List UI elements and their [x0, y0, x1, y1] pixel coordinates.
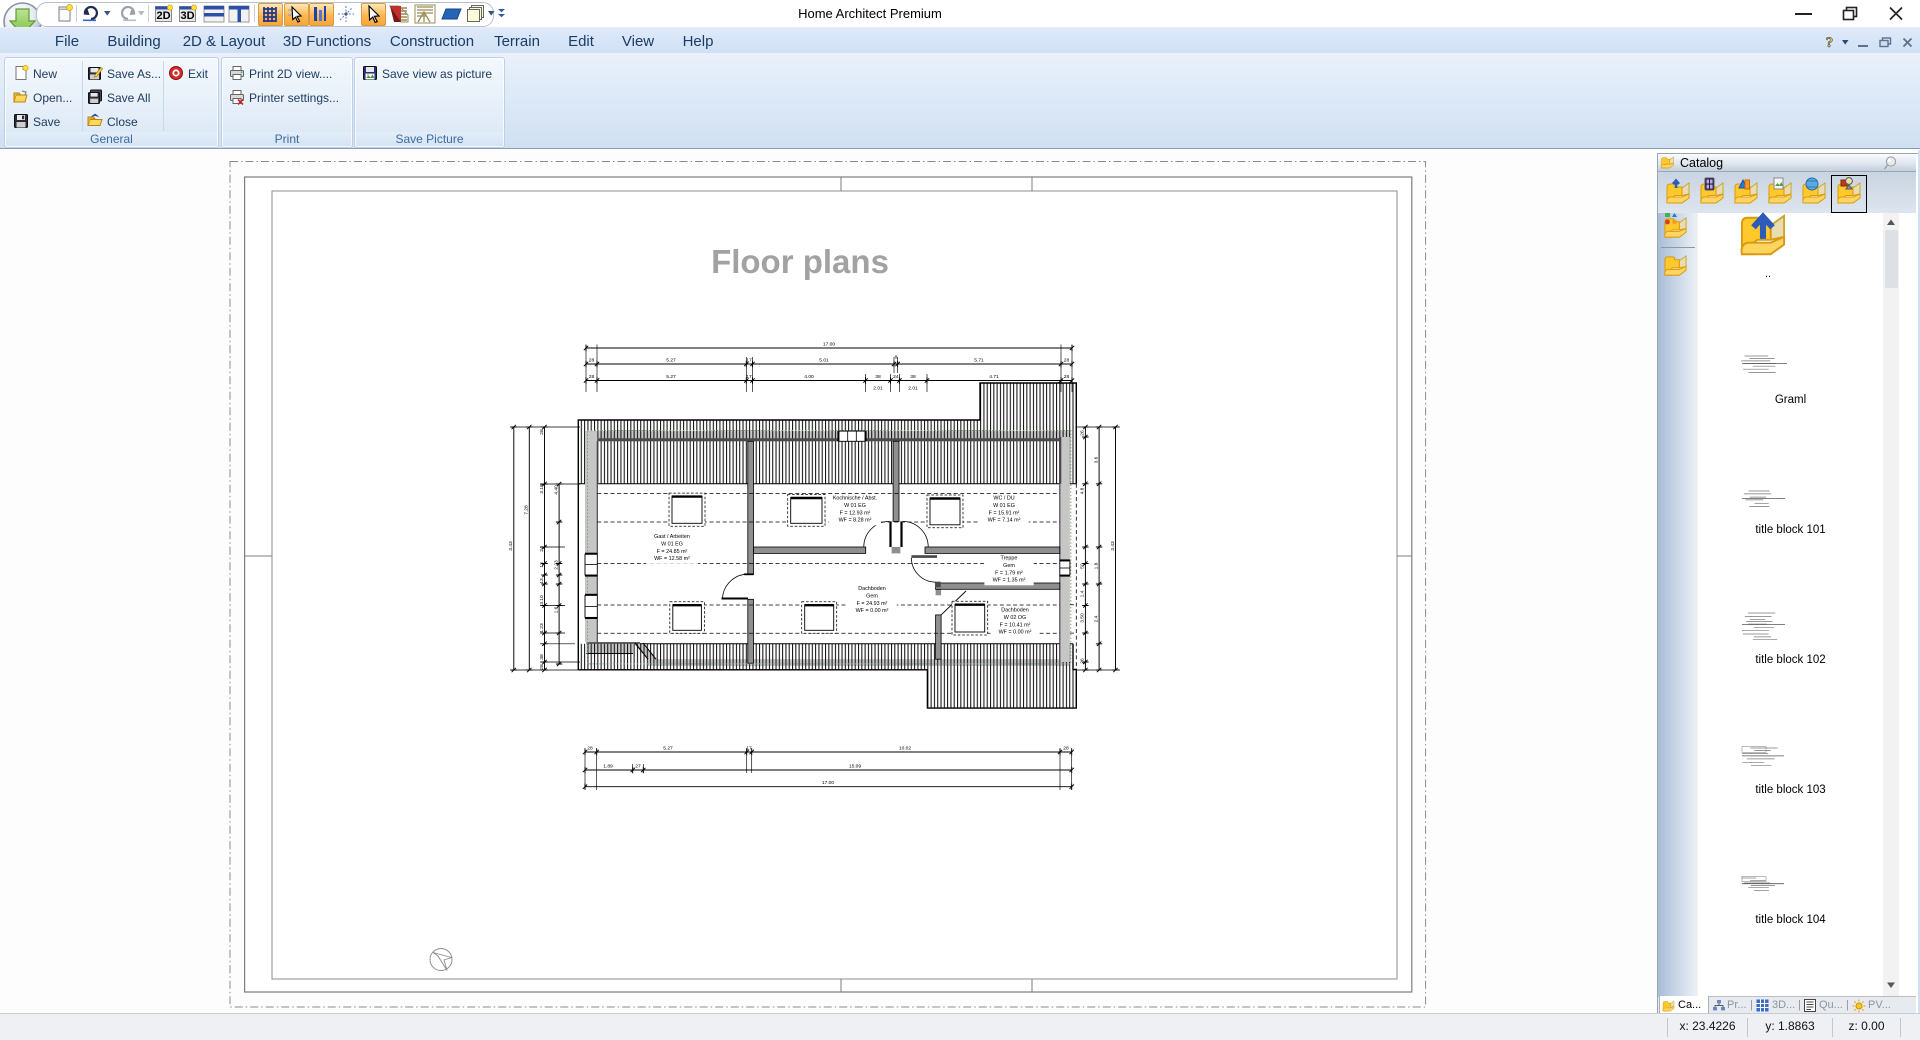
svg-text:2.4: 2.4	[1093, 615, 1099, 622]
svg-text:2.01: 2.01	[908, 386, 918, 392]
svg-text:WF = 8.28 m²: WF = 8.28 m²	[839, 518, 872, 524]
svg-text:3.43: 3.43	[508, 541, 514, 551]
svg-text:3.43: 3.43	[1110, 541, 1116, 551]
svg-text:F = 24.93 m²: F = 24.93 m²	[857, 601, 888, 607]
svg-text:38: 38	[910, 374, 916, 380]
svg-text:13: 13	[539, 562, 545, 568]
svg-text:5.27: 5.27	[666, 374, 676, 380]
svg-text:Dachboden: Dachboden	[1001, 608, 1029, 614]
svg-text:28: 28	[1064, 374, 1070, 380]
svg-text:1.23: 1.23	[539, 623, 545, 633]
svg-text:26: 26	[1080, 658, 1086, 664]
svg-text:WF = 0.00 m²: WF = 0.00 m²	[856, 608, 889, 614]
svg-text:17: 17	[746, 746, 752, 752]
svg-text:WF = 7.14 m²: WF = 7.14 m²	[988, 518, 1021, 524]
svg-text:28: 28	[587, 746, 593, 752]
svg-text:Kochnische / Abst.: Kochnische / Abst.	[833, 496, 877, 502]
svg-text:WC / DU: WC / DU	[993, 496, 1014, 502]
svg-text:4.8: 4.8	[1080, 487, 1086, 494]
svg-text:Gast / Arbeiten: Gast / Arbeiten	[654, 534, 690, 540]
svg-text:Gem: Gem	[1003, 563, 1015, 569]
svg-text:10.02: 10.02	[899, 746, 912, 752]
svg-text:2.23: 2.23	[554, 560, 560, 570]
svg-text:27: 27	[635, 764, 641, 770]
svg-text:5.71: 5.71	[974, 358, 984, 364]
svg-text:1.8: 1.8	[1093, 562, 1099, 569]
svg-text:5.27: 5.27	[666, 358, 676, 364]
svg-text:8: 8	[895, 355, 898, 361]
svg-text:17: 17	[746, 374, 752, 380]
svg-text:3D: 3D	[180, 10, 194, 22]
svg-text:1.89: 1.89	[603, 764, 613, 770]
svg-text:4.00: 4.00	[804, 374, 814, 380]
svg-text:W 01 EG: W 01 EG	[993, 503, 1015, 509]
svg-text:28: 28	[589, 374, 595, 380]
svg-text:5.27: 5.27	[663, 746, 673, 752]
svg-text:3.18: 3.18	[539, 484, 545, 494]
svg-text:3.50: 3.50	[1080, 613, 1086, 623]
svg-text:F = 12.93 m²: F = 12.93 m²	[840, 510, 871, 516]
svg-text:50: 50	[1080, 563, 1086, 569]
svg-text:F = 15.91 m²: F = 15.91 m²	[989, 510, 1020, 516]
svg-text:4.71: 4.71	[989, 374, 999, 380]
svg-text:3.6: 3.6	[1093, 456, 1099, 463]
svg-text:2D: 2D	[156, 10, 170, 22]
svg-text:26: 26	[1080, 430, 1086, 436]
svg-text:17.00: 17.00	[823, 342, 836, 348]
svg-text:W 01 EG: W 01 EG	[844, 503, 866, 509]
svg-text:5.01: 5.01	[819, 358, 829, 364]
svg-text:24: 24	[893, 374, 899, 380]
svg-text:F = 24.85 m²: F = 24.85 m²	[657, 549, 688, 555]
svg-text:17: 17	[746, 358, 752, 364]
svg-text:WF = 12.58 m²: WF = 12.58 m²	[654, 556, 690, 562]
svg-text:28: 28	[1063, 746, 1069, 752]
svg-text:Floor plans: Floor plans	[711, 243, 889, 280]
svg-text:F = 1.79 m²: F = 1.79 m²	[995, 570, 1023, 576]
svg-text:28: 28	[539, 429, 545, 435]
svg-text:28: 28	[539, 664, 545, 670]
svg-text:1.4: 1.4	[1080, 590, 1086, 597]
svg-text:17.00: 17.00	[822, 780, 835, 786]
svg-text:W 02 OG: W 02 OG	[1004, 615, 1026, 621]
svg-text:38: 38	[875, 374, 881, 380]
svg-text:38: 38	[539, 654, 545, 660]
svg-text:3.10: 3.10	[539, 595, 545, 605]
svg-text:24: 24	[539, 546, 545, 552]
svg-text:Treppe: Treppe	[1001, 556, 1018, 562]
svg-text:2.01: 2.01	[873, 386, 883, 392]
svg-text:WF = 1.35 m²: WF = 1.35 m²	[993, 578, 1026, 584]
svg-text:28: 28	[589, 358, 595, 364]
svg-text:F = 10.41 m²: F = 10.41 m²	[1000, 622, 1031, 628]
svg-text:WF = 0.00 m²: WF = 0.00 m²	[999, 630, 1032, 636]
svg-text:1.6: 1.6	[554, 606, 560, 613]
svg-text:15.09: 15.09	[849, 764, 862, 770]
svg-text:Dachboden: Dachboden	[858, 586, 886, 592]
svg-text:13: 13	[539, 578, 545, 584]
svg-text:28: 28	[1064, 358, 1070, 364]
svg-text:7.28: 7.28	[524, 505, 530, 515]
svg-text:4.40: 4.40	[554, 485, 560, 495]
svg-text:?: ?	[1826, 35, 1834, 50]
svg-text:W 01 EG: W 01 EG	[661, 541, 683, 547]
svg-text:Gem: Gem	[866, 593, 878, 599]
